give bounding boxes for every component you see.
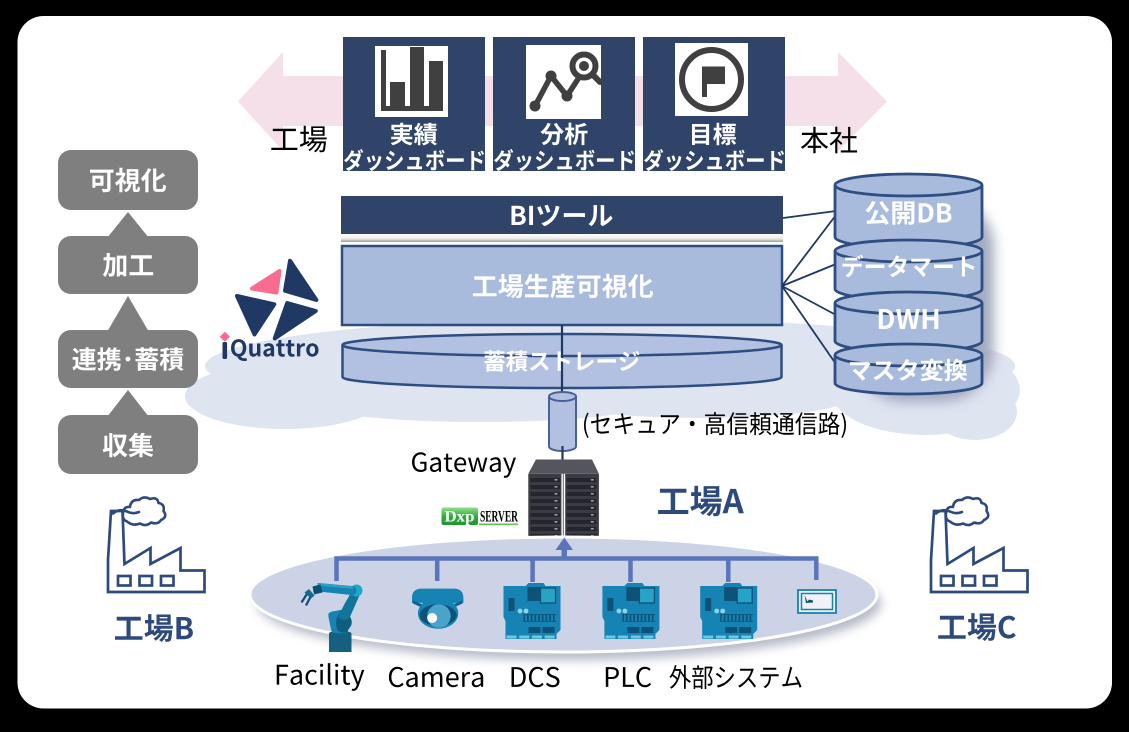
svg-text:Dxp: Dxp	[445, 509, 475, 526]
svg-text:SERVER: SERVER	[480, 509, 518, 526]
